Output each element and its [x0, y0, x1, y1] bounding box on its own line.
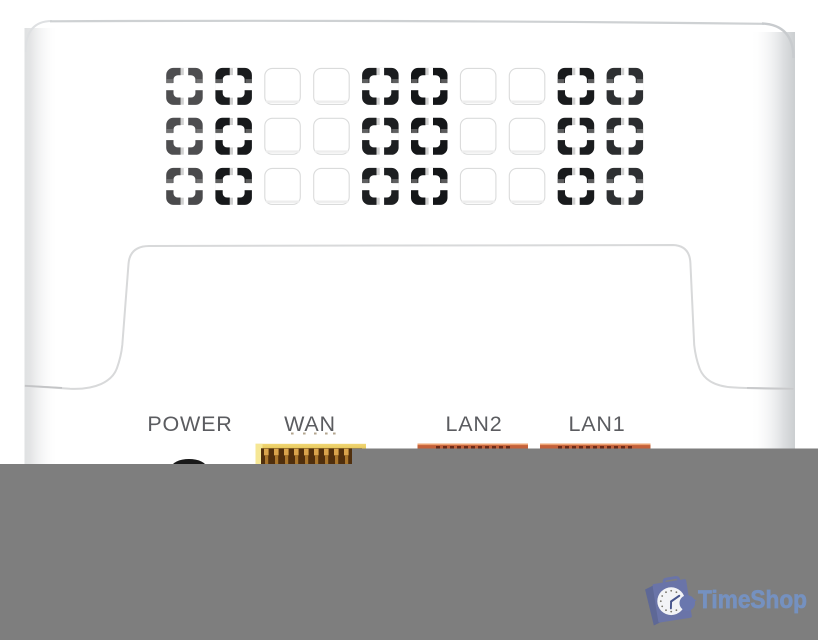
- svg-text:LAN2: LAN2: [446, 412, 503, 436]
- svg-text:TimeShop: TimeShop: [698, 586, 807, 614]
- svg-text:POWER: POWER: [147, 412, 232, 436]
- svg-text:WAN: WAN: [284, 412, 336, 436]
- svg-text:LAN1: LAN1: [569, 412, 626, 436]
